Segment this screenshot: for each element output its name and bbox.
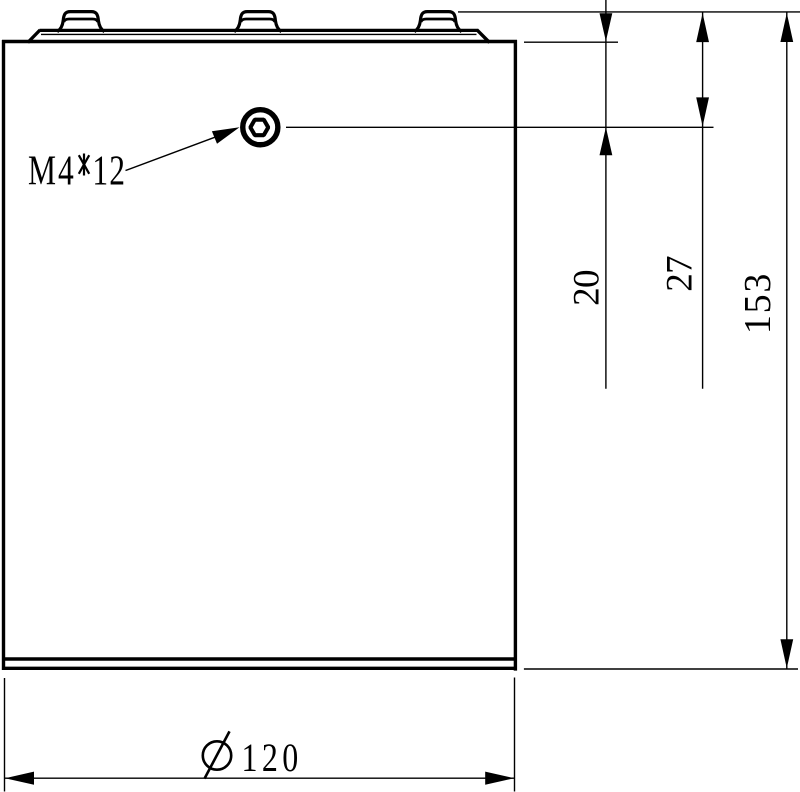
svg-text:153: 153 <box>737 274 779 335</box>
svg-text:12: 12 <box>92 148 126 194</box>
svg-text:20: 20 <box>567 269 608 305</box>
svg-text:M4: M4 <box>28 148 76 194</box>
svg-text:27: 27 <box>659 255 700 291</box>
svg-text:120: 120 <box>242 735 303 779</box>
